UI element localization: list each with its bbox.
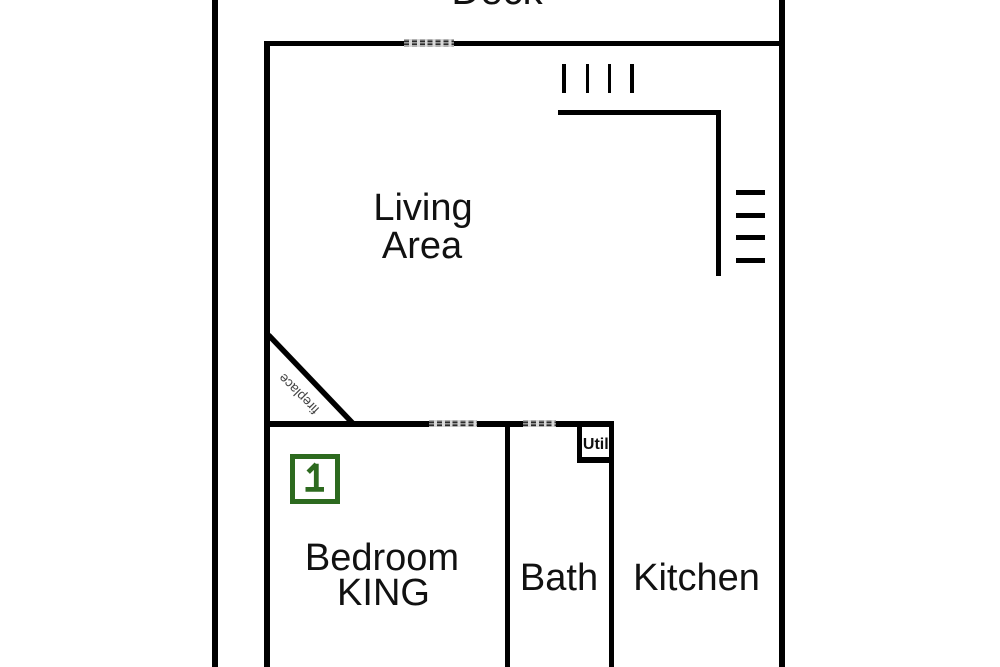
svg-text:fireplace: fireplace [275,371,322,418]
